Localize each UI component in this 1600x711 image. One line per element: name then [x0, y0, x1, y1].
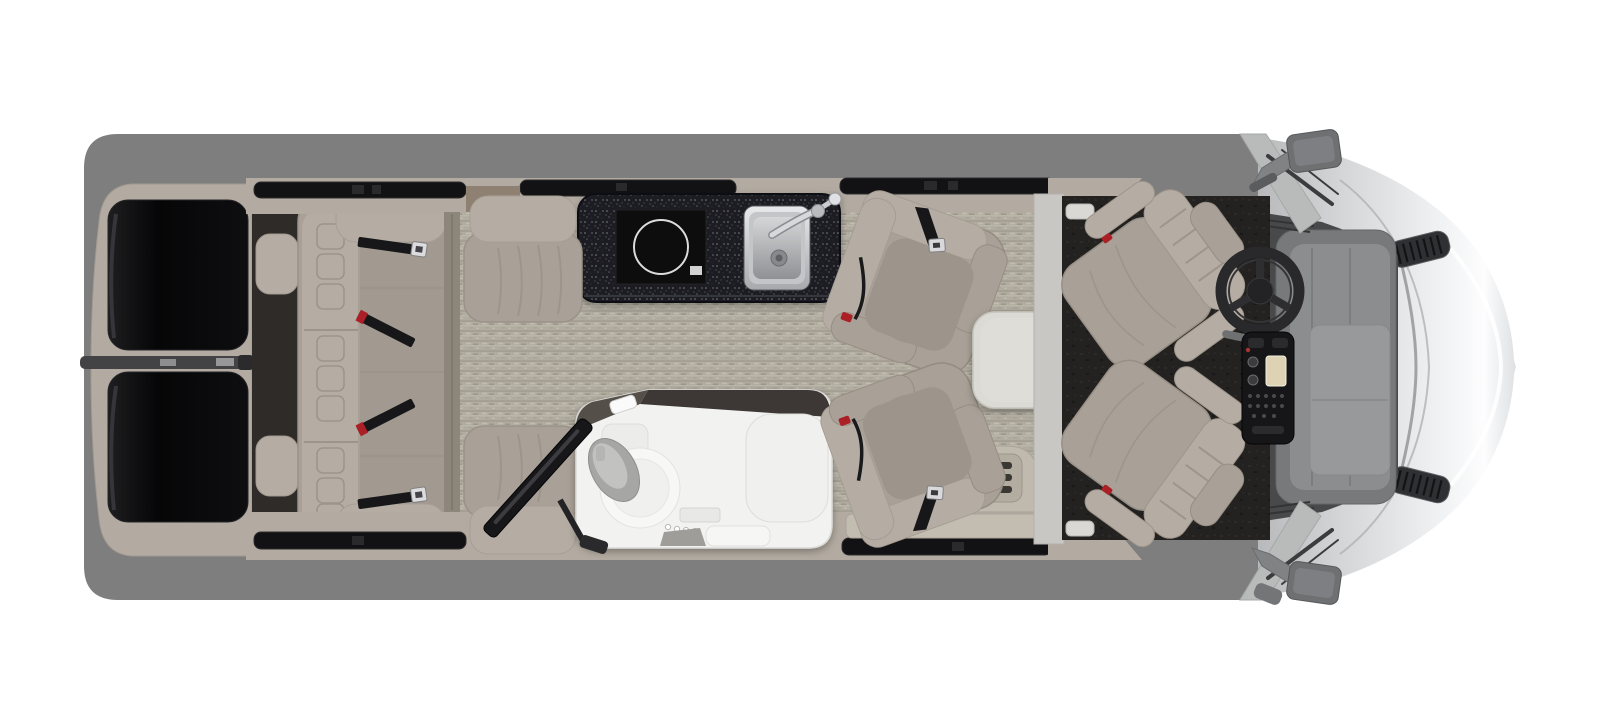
- rear-sofa: [298, 194, 450, 552]
- rear-window-bottom: [108, 372, 248, 522]
- rv-floorplan-screenshot: Top-down cutaway floor plan rendering of…: [0, 0, 1600, 711]
- bathroom: [576, 390, 832, 548]
- induction-cooktop: [616, 210, 706, 284]
- infotainment-screen: [1266, 356, 1286, 386]
- cooktop-logo-mark: [690, 266, 702, 275]
- cab-trim-clip-bottom: [1066, 521, 1094, 536]
- sofa-backrest: [302, 208, 360, 538]
- sofa-side-bolster-bottom: [256, 436, 298, 496]
- shower-bench: [746, 414, 828, 522]
- galley: [578, 193, 841, 302]
- center-console: [1242, 332, 1294, 444]
- rear-doors: [80, 184, 301, 556]
- sofa-side-bolster-top: [256, 234, 298, 294]
- jump-seat-top: [464, 196, 582, 322]
- rear-window-top: [108, 200, 248, 350]
- vanity-basin: [706, 526, 770, 546]
- floorplan-svg: Top-down cutaway floor plan rendering of…: [0, 0, 1600, 711]
- b-pillar-wall: [1034, 194, 1064, 544]
- window-slot-slider-top: [840, 178, 1054, 194]
